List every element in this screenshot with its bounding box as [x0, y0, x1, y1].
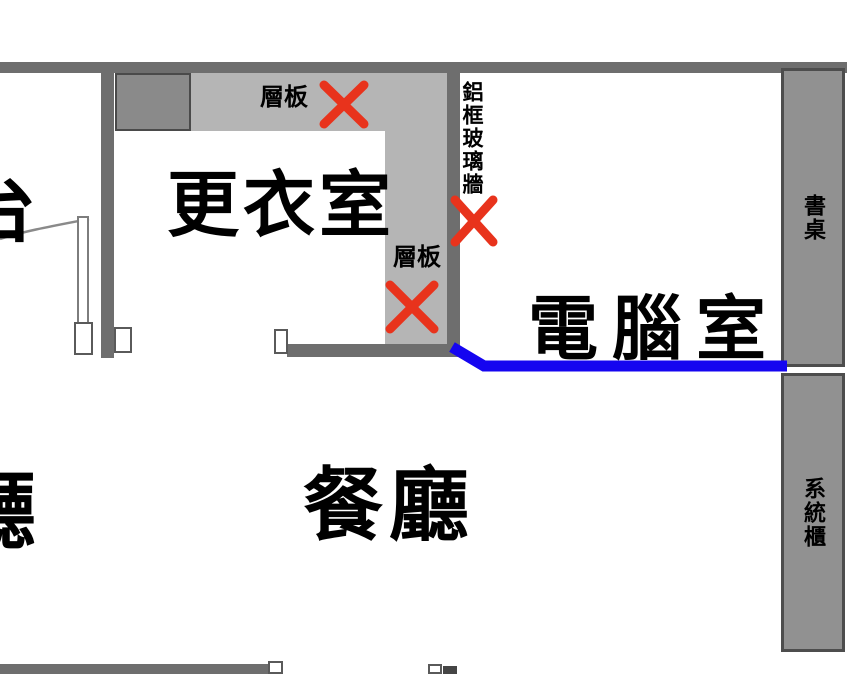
living-room-partial-label: 廳: [0, 468, 36, 554]
closet-corner-cabinet: [115, 73, 191, 131]
dining-room-label: 餐廳: [303, 466, 475, 546]
closet-door-jamb: [274, 329, 288, 354]
dressing-room-label: 更衣室: [167, 170, 395, 242]
shelf-side-label: 層板: [393, 246, 441, 270]
door-jamb-right: [114, 327, 132, 353]
bottom-door-jamb-right: [428, 664, 442, 674]
wall-left: [101, 62, 114, 358]
desk-furniture: 書桌: [781, 68, 845, 367]
wall-bottom: [0, 664, 268, 674]
bottom-door-post: [443, 666, 457, 674]
computer-room-label: 電腦室: [528, 294, 780, 364]
door-jamb-left: [74, 322, 93, 355]
floor-plan: 書桌 系統櫃 更衣室 餐廳 電腦室 廳 台 層板 層板 鋁框玻璃牆: [0, 0, 847, 674]
closet-bottom-wall: [287, 344, 460, 357]
system-cabinet-furniture: 系統櫃: [781, 373, 845, 652]
glass-wall-label: 鋁框玻璃牆: [461, 81, 482, 196]
system-cabinet-label: 系統櫃: [802, 477, 824, 549]
shelf-top-label: 層板: [260, 86, 308, 110]
door-leaf: [77, 216, 89, 326]
desk-label: 書桌: [802, 194, 824, 242]
glass-wall-pillar: [447, 70, 460, 357]
balcony-partial-label: 台: [0, 172, 36, 248]
bottom-door-jamb-left: [268, 661, 283, 674]
wall-top: [0, 62, 847, 73]
